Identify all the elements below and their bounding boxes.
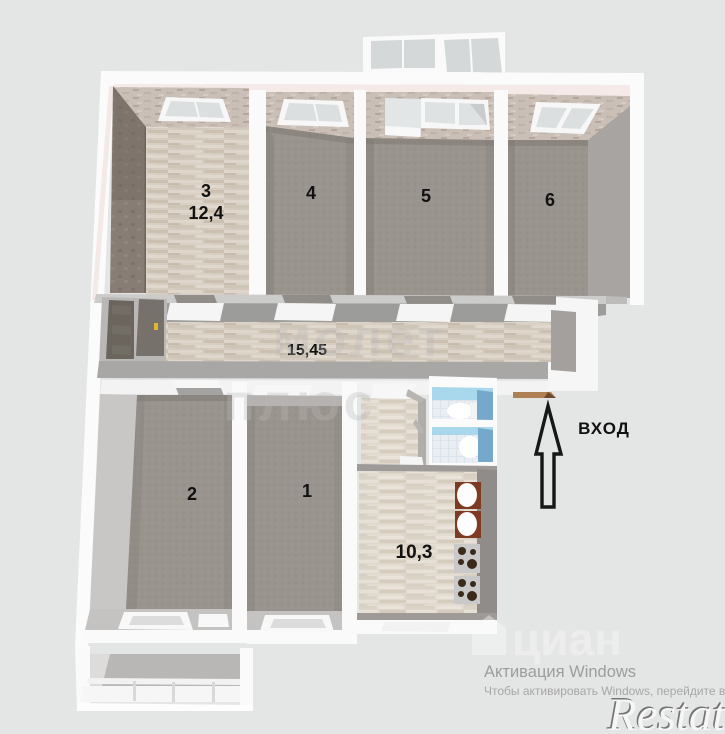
svg-text:6: 6 [545,190,555,210]
svg-text:10,3: 10,3 [396,542,433,563]
svg-text:Restate: Restate [607,689,725,734]
svg-text:4: 4 [306,183,316,203]
svg-text:молет: молет [273,310,447,368]
svg-text:Активация Windows: Активация Windows [484,663,636,681]
svg-text:циан: циан [512,613,622,665]
svg-text:ВХОД: ВХОД [578,419,630,438]
svg-text:12,4: 12,4 [188,203,223,223]
svg-text:5: 5 [421,186,431,206]
svg-text:1: 1 [302,481,312,501]
svg-text:3: 3 [201,181,211,201]
svg-text:плюс: плюс [223,374,376,432]
svg-text:2: 2 [187,484,197,504]
